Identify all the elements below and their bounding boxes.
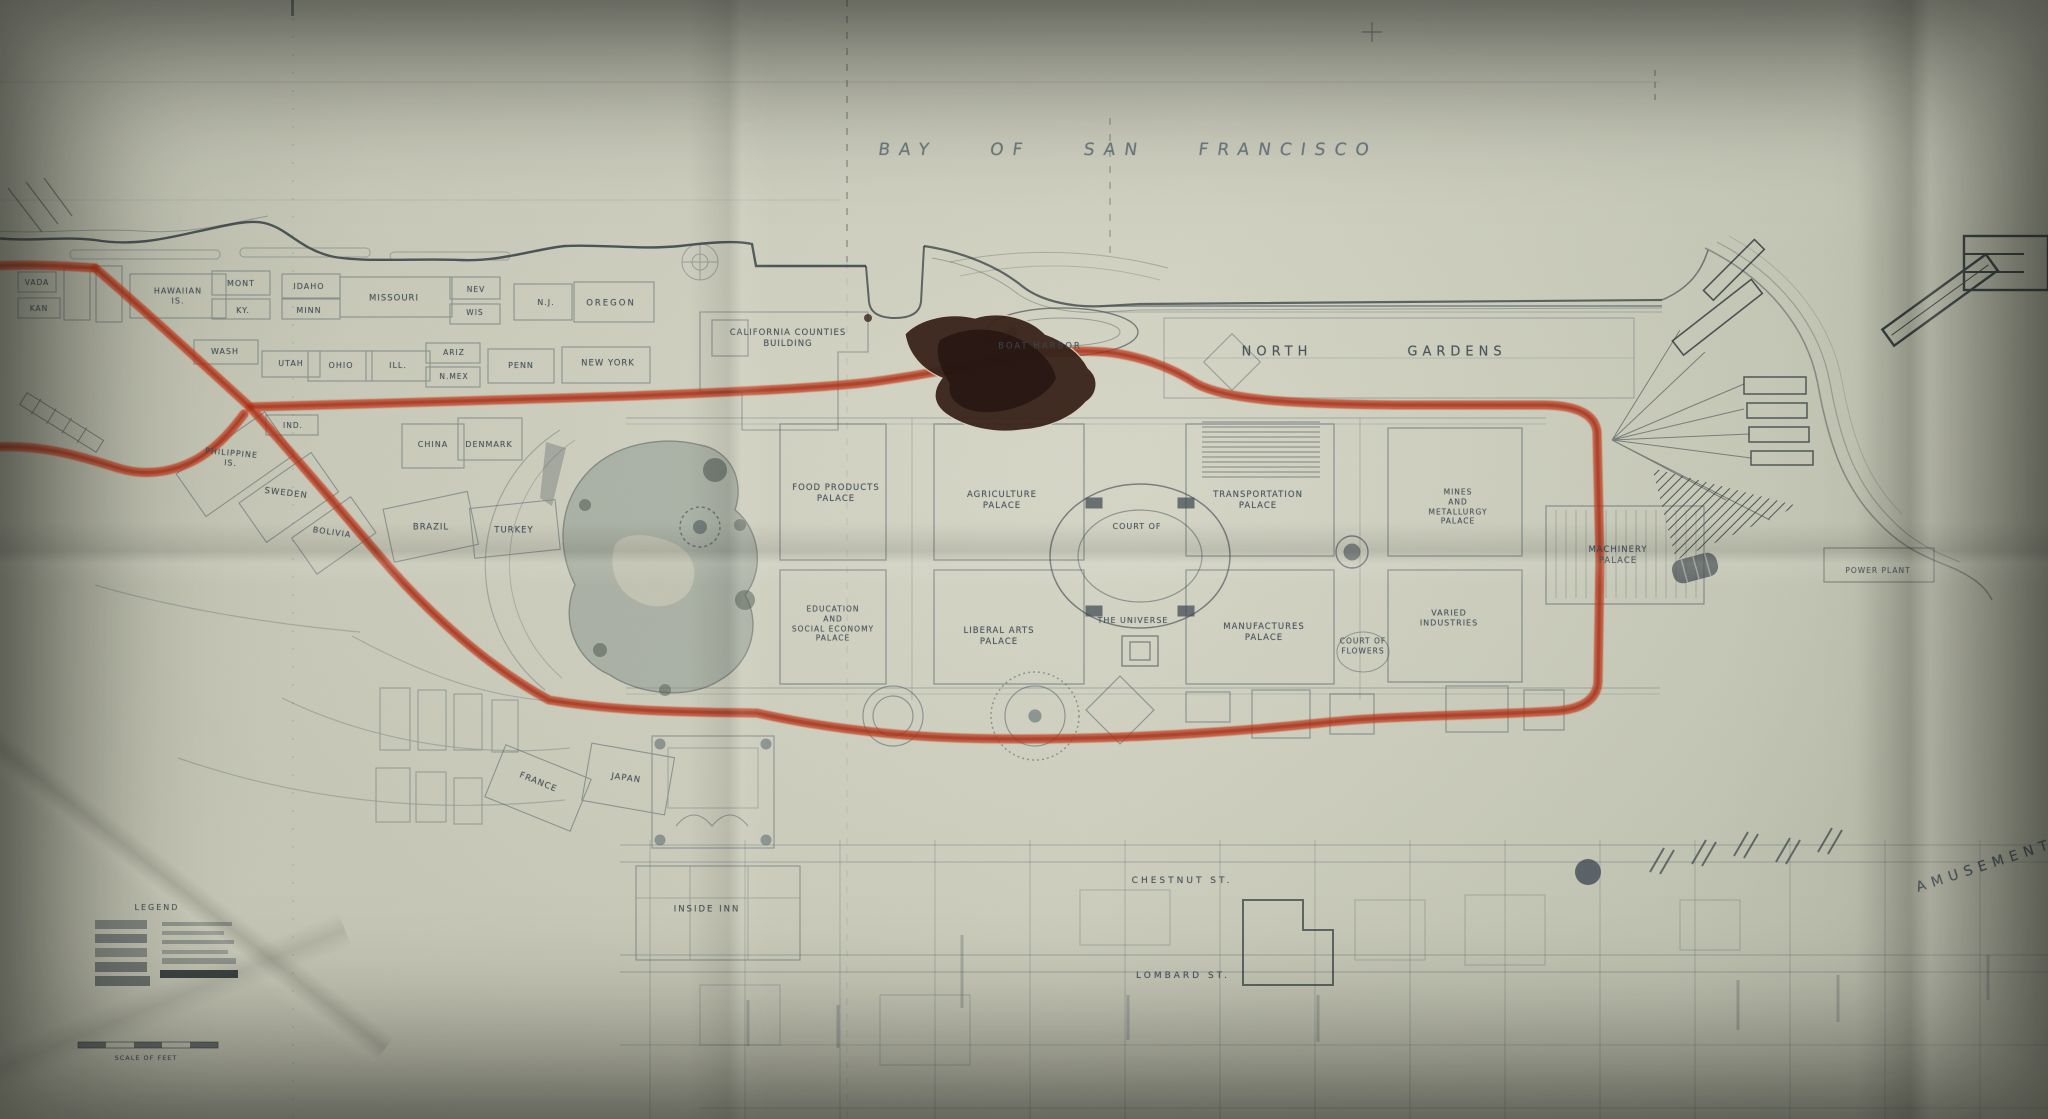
label-mines: MINES AND METALLURGY PALACE <box>1428 488 1487 527</box>
label-amusement: AMUSEMENT <box>1914 835 2048 897</box>
label-ariz: ARIZ <box>443 348 465 358</box>
label-legend: LEGEND <box>135 903 180 913</box>
label-varied: VARIED INDUSTRIES <box>1420 609 1478 630</box>
bay-label: BAY OF SAN FRANCISCO <box>877 139 1379 161</box>
label-china: CHINA <box>418 440 448 450</box>
label-kan: KAN <box>30 304 49 314</box>
label-boat-harbor: BOAT HARBOR <box>998 341 1082 352</box>
label-france: FRANCE <box>517 770 558 795</box>
label-court-of: COURT OF FLOWERS <box>1340 636 1386 656</box>
label-new-york: NEW YORK <box>581 358 635 369</box>
label-wis: WIS <box>466 308 483 318</box>
label-ind: IND. <box>283 421 303 431</box>
label-bolivia: BOLIVIA <box>312 525 352 541</box>
map-labels-layer: VADAKANHAWAIIAN IS.MONTKY.IDAHOMINNMISSO… <box>0 0 2048 1119</box>
label-scale-of-feet: SCALE OF FEET <box>115 1054 178 1062</box>
label-north: NORTH <box>1242 345 1313 362</box>
label-liberal-arts: LIBERAL ARTS PALACE <box>964 626 1035 648</box>
label-power-plant: POWER PLANT <box>1845 566 1910 576</box>
label-sweden: SWEDEN <box>264 486 308 502</box>
label-vada: VADA <box>25 278 50 288</box>
label-japan: JAPAN <box>610 771 641 786</box>
label-philippine: PHILIPPINE IS. <box>204 446 259 471</box>
label-n-j: N.J. <box>537 298 554 308</box>
label-education: EDUCATION AND SOCIAL ECONOMY PALACE <box>792 605 874 644</box>
label-idaho: IDAHO <box>293 282 324 292</box>
label-ky: KY. <box>236 306 250 316</box>
label-mont: MONT <box>227 279 255 289</box>
label-n-mex: N.MEX <box>439 372 468 382</box>
label-inside-inn: INSIDE INN <box>674 904 741 915</box>
label-nev: NEV <box>467 285 485 295</box>
label-gardens: GARDENS <box>1407 345 1506 362</box>
label-penn: PENN <box>508 361 534 371</box>
label-food-products: FOOD PRODUCTS PALACE <box>792 483 880 505</box>
label-chestnut-st: CHESTNUT ST. <box>1132 876 1233 888</box>
label-ill: ILL. <box>389 361 407 371</box>
label-missouri: MISSOURI <box>369 293 419 304</box>
label-ohio: OHIO <box>329 361 354 371</box>
label-hawaiian: HAWAIIAN IS. <box>154 287 202 308</box>
label-agriculture: AGRICULTURE PALACE <box>967 490 1037 512</box>
label-brazil: BRAZIL <box>413 522 449 533</box>
label-the-universe: THE UNIVERSE <box>1098 616 1169 626</box>
label-utah: UTAH <box>278 359 304 369</box>
label-machinery: MACHINERY PALACE <box>1588 545 1647 567</box>
label-wash: WASH <box>211 347 239 357</box>
label-oregon: OREGON <box>586 298 636 309</box>
label-court-of: COURT OF <box>1112 522 1161 532</box>
label-california-counties: CALIFORNIA COUNTIES BUILDING <box>730 328 847 350</box>
map-photo: VADAKANHAWAIIAN IS.MONTKY.IDAHOMINNMISSO… <box>0 0 2048 1119</box>
label-manufactures: MANUFACTURES PALACE <box>1223 622 1305 644</box>
label-lombard-st: LOMBARD ST. <box>1136 971 1230 983</box>
label-turkey: TURKEY <box>494 525 533 536</box>
label-minn: MINN <box>296 306 321 316</box>
label-transportation: TRANSPORTATION PALACE <box>1213 490 1303 512</box>
label-denmark: DENMARK <box>465 440 512 450</box>
